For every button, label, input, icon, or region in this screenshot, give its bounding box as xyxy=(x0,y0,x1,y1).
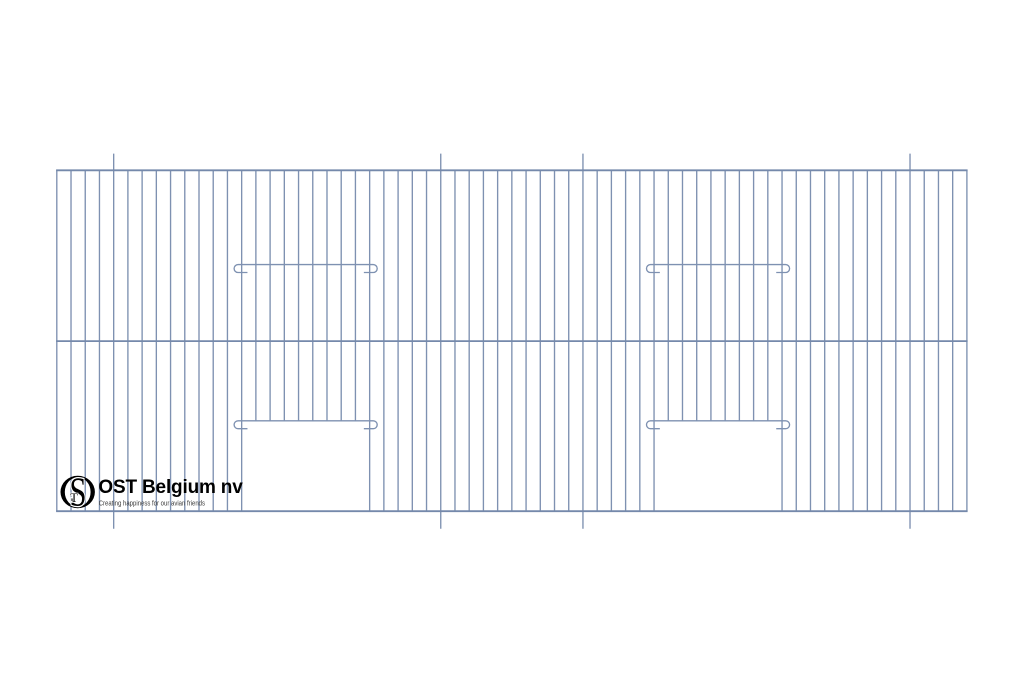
svg-text:T: T xyxy=(70,491,78,505)
svg-text:Creating happiness for our avi: Creating happiness for our avian friends xyxy=(99,499,206,508)
svg-text:OST Belgium nv: OST Belgium nv xyxy=(98,477,243,498)
